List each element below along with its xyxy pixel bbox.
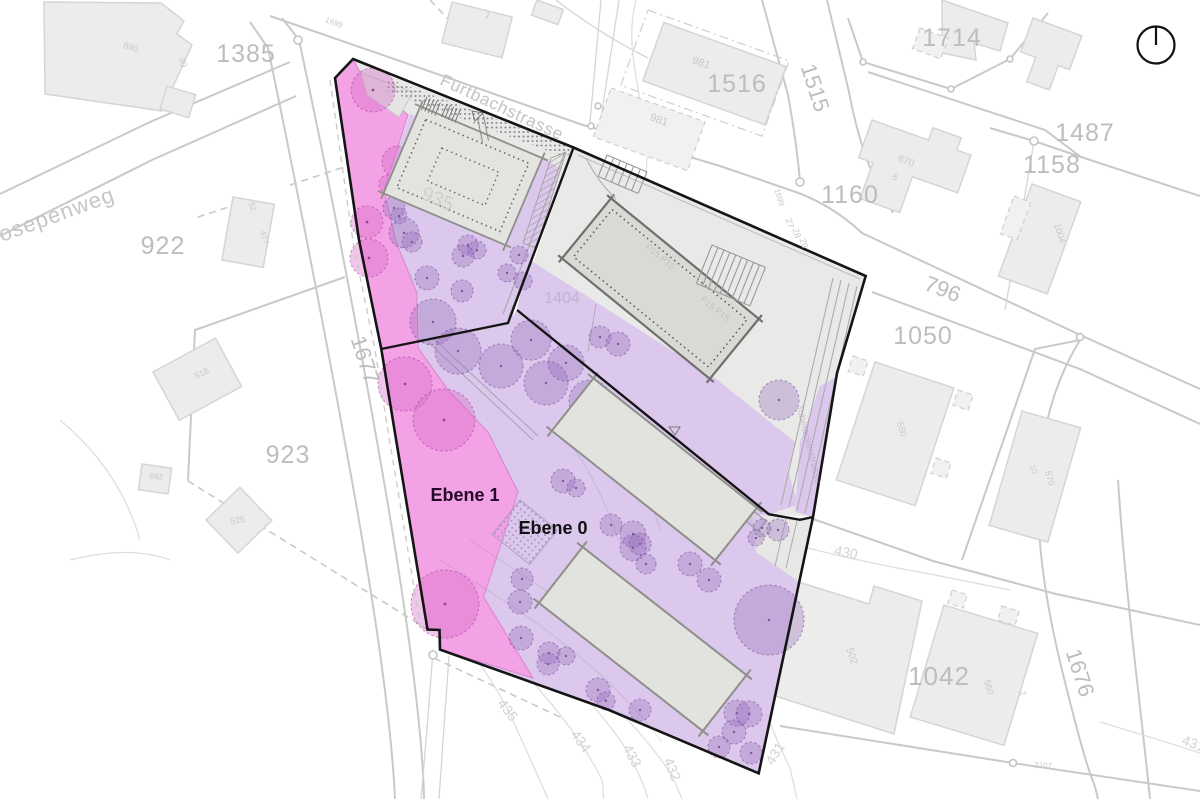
svg-text:1516: 1516 (707, 70, 767, 98)
svg-text:922: 922 (141, 232, 186, 260)
svg-text:525: 525 (229, 514, 245, 526)
svg-text:1160: 1160 (821, 181, 879, 209)
svg-text:2107: 2107 (1034, 761, 1053, 771)
svg-text:692: 692 (149, 471, 164, 481)
svg-text:1050: 1050 (893, 322, 953, 350)
svg-text:Ebene 0: Ebene 0 (518, 518, 587, 538)
svg-text:1385: 1385 (216, 40, 276, 68)
svg-text:923: 923 (266, 441, 311, 469)
svg-text:Ebene 1: Ebene 1 (430, 485, 499, 505)
svg-text:1404: 1404 (544, 290, 580, 307)
svg-text:1042: 1042 (908, 661, 970, 691)
svg-text:1714: 1714 (922, 24, 982, 52)
svg-text:1158: 1158 (1023, 151, 1081, 179)
svg-text:1487: 1487 (1055, 119, 1115, 147)
